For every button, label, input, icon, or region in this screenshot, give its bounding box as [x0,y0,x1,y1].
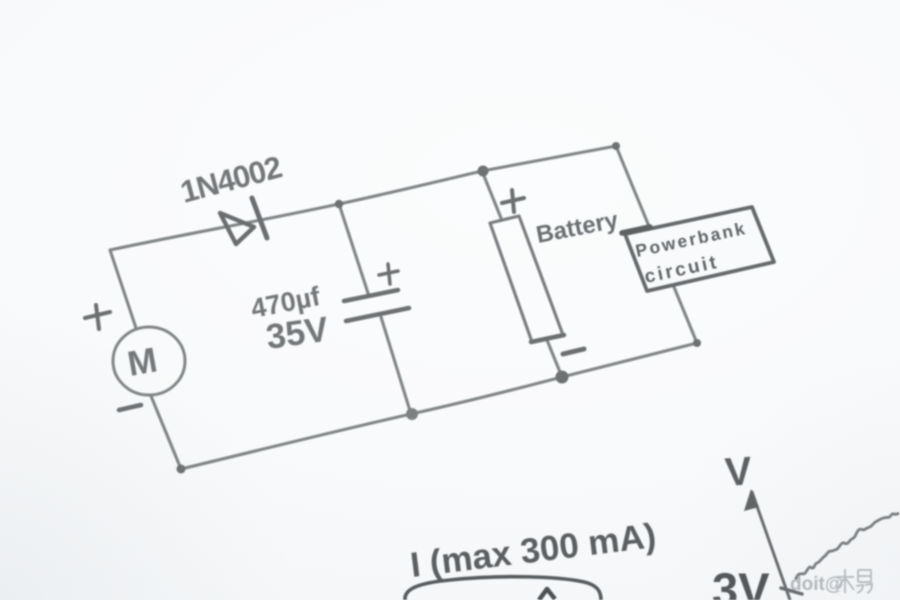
svg-text:1N4002: 1N4002 [177,149,285,209]
svg-text:35V: 35V [264,310,332,357]
svg-text:I (max 300 mA): I (max 300 mA) [408,516,658,585]
svg-text:M: M [125,340,160,383]
svg-text:doit@: doit@ [790,574,843,595]
svg-text:Battery: Battery [534,206,621,248]
svg-text:V: V [724,449,754,495]
svg-text:3V: 3V [712,563,770,600]
